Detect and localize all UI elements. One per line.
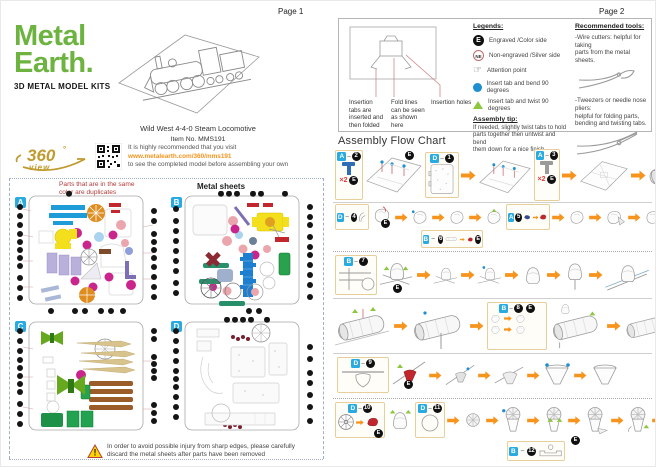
badge-360-view-word: view	[29, 163, 50, 172]
divider-dotted-bottom	[9, 459, 323, 460]
arrow-icon	[631, 169, 646, 182]
arrow-icon	[628, 212, 641, 223]
part-illustration	[514, 324, 527, 335]
sheet-tag: B	[499, 304, 508, 313]
step-illustration: E	[379, 258, 415, 293]
step-number: 12	[527, 447, 536, 456]
sheet-b-diagram	[169, 191, 319, 315]
step-illustration	[410, 208, 430, 226]
flow-box-b12: B – 12	[507, 441, 565, 461]
page2-label: Page 2	[599, 7, 624, 16]
insertion-label-tabs: Insertion tabs are inserted and then fol…	[349, 99, 385, 129]
tweezers-line3: bending and twisting tabs.	[575, 120, 647, 128]
step-number: 8	[514, 304, 523, 313]
part-illustration	[539, 212, 548, 222]
sheet-tag: D	[348, 404, 357, 413]
dash: –	[432, 236, 435, 242]
sheet-tag: D	[351, 359, 360, 368]
engraved-marker: E	[349, 176, 358, 185]
row-divider-dotted	[333, 398, 652, 399]
part-illustration	[523, 212, 532, 222]
step-illustration	[579, 155, 629, 195]
legend-attention-label: Attention point	[487, 67, 527, 74]
flow-box-d4: D – 4	[335, 204, 369, 230]
dash: –	[346, 214, 349, 220]
arrow-icon	[611, 415, 624, 426]
step-illustration	[563, 259, 587, 291]
wire-cutters-line1: -Wire cutters: helpful for taking	[575, 34, 647, 49]
legend-non-engraved-label: Non-engraved /Silver side	[489, 52, 560, 59]
arrow-icon	[607, 320, 621, 332]
legends-section: Legends: E Engraved /Color side NE Non-e…	[473, 23, 569, 155]
view360-line1: It is highly recommended that you visit	[128, 144, 328, 153]
page1-label: Page 1	[278, 7, 303, 16]
insertion-label-fold: Fold lines can be seen as shown here	[391, 99, 427, 129]
arrow-icon	[417, 269, 431, 281]
row-divider-dotted	[333, 251, 652, 252]
tools-title: Recommended tools:	[575, 23, 647, 30]
part-illustration	[427, 163, 457, 197]
step-illustration	[411, 303, 467, 349]
engraved-marker: E	[475, 235, 481, 244]
logo-word-metal: Metal	[14, 23, 110, 50]
flow-box-d9: D – 9	[337, 357, 389, 393]
step-number: 6	[438, 235, 444, 244]
sheet-a-diagram	[13, 191, 163, 315]
flow-box-b6: B – 6 E	[421, 230, 483, 248]
legend-engraved-label: Engraved /Color side	[489, 37, 547, 44]
warning-line2: discard the metal sheets after parts hav…	[107, 451, 295, 459]
insertion-diagram	[348, 25, 468, 97]
flow-box-b7: B – 7	[335, 255, 377, 295]
flow-box-a3: A – 3 ×2 E	[534, 149, 560, 201]
step-number: 10	[363, 404, 372, 413]
sheet-c-diagram	[13, 317, 163, 441]
arrow-icon	[460, 236, 465, 243]
part-illustration	[467, 235, 474, 244]
arrow-icon	[478, 370, 491, 381]
step-illustration	[462, 412, 484, 428]
non-engraved-badge-icon: NE	[473, 50, 484, 61]
flow-row-1: A – 2 ×2 E E D – 1 A	[335, 149, 653, 201]
legend-twist: Insert tab and twist 90 degrees	[473, 98, 569, 112]
arrow-icon	[461, 269, 475, 281]
engraved-badge-icon: E	[473, 35, 484, 46]
flow-box-d10: D – 10 E	[335, 402, 385, 438]
part-illustration	[365, 416, 381, 428]
part-illustration	[445, 234, 457, 244]
arrow-icon	[589, 269, 603, 281]
step-illustration	[626, 406, 650, 434]
arrow-icon	[562, 169, 577, 182]
bend-dot-icon	[473, 83, 482, 92]
engraved-marker: E	[571, 436, 580, 445]
dash: –	[347, 154, 350, 160]
step-illustration	[604, 207, 626, 227]
part-illustration	[340, 368, 386, 388]
sheet-tag: D	[430, 154, 439, 163]
step-number: 5	[515, 213, 521, 222]
warning-line1: In order to avoid possible injury from s…	[107, 443, 295, 451]
legends-title: Legends:	[473, 23, 569, 30]
part-illustration	[489, 313, 502, 324]
arrow-icon	[470, 320, 484, 332]
dash: –	[358, 406, 361, 412]
step-illustration	[590, 362, 620, 388]
arrow-icon	[504, 326, 512, 333]
step-illustration	[643, 208, 656, 226]
arrow-icon	[574, 370, 587, 381]
engraved-marker: E	[381, 219, 390, 228]
legend-twist-label: Insert tab and twist 90 degrees	[488, 98, 569, 112]
step-number: 3	[550, 151, 558, 160]
part-illustration	[489, 324, 502, 335]
model-name: Wild West 4-4-0 Steam Locomotive	[93, 124, 303, 133]
dash: –	[509, 306, 512, 312]
arrow-icon	[469, 212, 482, 223]
sheet-tag: D	[337, 213, 344, 222]
flow-box-b8: B – 8 E	[487, 302, 547, 350]
flow-row-5: D – 9 E	[337, 356, 653, 394]
dash: –	[354, 259, 357, 265]
arrow-icon	[447, 415, 460, 426]
arrow-icon	[552, 212, 565, 223]
part-illustration	[358, 209, 367, 225]
engraved-marker: E	[405, 151, 414, 160]
dash: –	[440, 156, 443, 162]
flow-chart-title: Assembly Flow Chart	[338, 135, 446, 147]
step-illustration	[445, 361, 475, 389]
part-illustration	[514, 313, 527, 324]
step-illustration	[494, 361, 524, 389]
step-illustration	[567, 208, 587, 226]
step-illustration	[387, 408, 413, 432]
brand-logo: Metal Earth. 3D METAL MODEL KITS	[14, 23, 110, 91]
step-illustration	[501, 406, 525, 434]
divider-dashed-left	[9, 178, 10, 459]
arrow-icon	[547, 269, 561, 281]
locomotive-line-drawing	[109, 19, 269, 121]
arrow-icon	[505, 269, 519, 281]
flow-row-2: D – 4 E A 5	[335, 204, 653, 230]
instruction-sheet: Page 1 Metal Earth. 3D METAL MODEL KITS …	[0, 0, 656, 467]
step-illustration: E	[371, 205, 393, 230]
sheet-tag: A	[536, 151, 544, 160]
warning-triangle-icon: !	[87, 444, 103, 459]
arrow-icon	[394, 320, 408, 332]
arrow-icon	[429, 370, 442, 381]
logo-tagline: 3D METAL MODEL KITS	[14, 82, 110, 91]
step-illustration	[605, 259, 651, 291]
engraved-marker: E	[526, 304, 535, 313]
arrow-icon	[395, 212, 408, 223]
step-illustration	[484, 208, 504, 226]
arrow-icon	[589, 212, 602, 223]
dash: –	[428, 406, 431, 412]
dash: –	[361, 361, 364, 367]
part-illustration	[538, 444, 563, 458]
tools-section: Recommended tools: -Wire cutters: helpfu…	[575, 23, 647, 161]
qr-code-icon	[95, 143, 122, 170]
sheet-d-diagram	[169, 317, 319, 441]
step-illustration	[335, 303, 391, 349]
arrow-icon	[527, 415, 540, 426]
item-number: Item No. MMS191	[93, 136, 303, 143]
legend-engraved: E Engraved /Color side	[473, 35, 569, 46]
step-illustration	[648, 162, 656, 188]
row-divider	[333, 353, 652, 354]
sheet-tag: A	[337, 152, 346, 161]
sheet-tag: B	[509, 447, 518, 456]
view360-url: www.metalearth.com/360/mms191	[128, 153, 328, 162]
flow-row-6: D – 10 E D – 11	[335, 401, 653, 439]
flow-row-4: B – 8 E	[335, 301, 653, 351]
step-illustration	[433, 262, 459, 288]
arrow-icon	[568, 415, 581, 426]
step-illustration	[583, 406, 609, 434]
sheet-tag: D	[418, 404, 427, 413]
flow-box-d11: D – 11	[415, 402, 445, 438]
step-illustration	[477, 262, 503, 288]
sheet-tag: B	[344, 257, 353, 266]
tweezers-line1: -Tweezers or needle nose pliers:	[575, 97, 647, 112]
badge-360-view: 360 ° view	[13, 144, 91, 174]
step-illustration	[543, 362, 571, 388]
engraved-marker: E	[374, 429, 383, 438]
part-illustration	[337, 266, 375, 292]
legend-non-engraved: NE Non-engraved /Silver side	[473, 50, 569, 61]
quantity-label: ×2	[340, 177, 348, 184]
step-illustration: E	[392, 358, 426, 393]
flow-box-a2: A – 2 ×2 E	[335, 150, 363, 200]
sheet-tag: B	[423, 235, 429, 244]
quantity-label: ×2	[538, 176, 546, 183]
divider-dashed-right	[323, 178, 324, 459]
step-illustration	[550, 303, 604, 349]
engraved-marker: E	[393, 284, 402, 293]
part-illustration	[539, 160, 555, 175]
view360-text: It is highly recommended that you visit …	[128, 144, 328, 170]
row-divider	[333, 298, 652, 299]
view360-line2: to see the completed model before assemb…	[128, 161, 328, 170]
sheet-tag: A	[508, 213, 514, 222]
legend-bend: Insert tab and bend 90 degrees	[473, 80, 569, 94]
step-number: 2	[352, 152, 361, 161]
step-number: 11	[433, 404, 442, 413]
arrow-icon	[652, 415, 656, 426]
engraved-marker: E	[404, 380, 413, 389]
step-number: 4	[351, 213, 358, 222]
engraved-marker: E	[547, 175, 556, 184]
assembly-tip-line2: parts together then untwist and bend	[473, 132, 569, 147]
step-number: 1	[445, 154, 454, 163]
divider-dotted	[9, 178, 323, 179]
flow-row-3: B – 7 E	[335, 254, 653, 296]
arrow-icon	[504, 315, 512, 322]
wire-cutters-line2: parts from the metal sheets.	[575, 49, 647, 64]
arrow-icon	[533, 214, 539, 221]
warning-text: In order to avoid possible injury from s…	[107, 443, 295, 459]
twist-triangle-icon	[473, 101, 483, 109]
svg-text:!: !	[94, 448, 97, 458]
arrow-icon	[432, 212, 445, 223]
tweezers-line2: helpful for folding parts,	[575, 113, 647, 121]
step-illustration	[478, 154, 532, 196]
pointing-hand-icon: ☞	[473, 65, 482, 76]
arrow-icon	[527, 370, 540, 381]
row-divider	[333, 202, 652, 203]
flow-box-a5: A 5	[506, 204, 550, 230]
part-illustration	[337, 413, 355, 431]
wire-cutters-icon	[575, 66, 641, 90]
badge-360-degree: °	[63, 145, 66, 154]
legend-attention: ☞ Attention point	[473, 65, 569, 76]
step-illustration: E	[365, 151, 423, 200]
dash: –	[521, 448, 524, 454]
step-number: 9	[366, 359, 375, 368]
assembly-tip-title: Assembly tip:	[473, 116, 569, 123]
step-illustration	[521, 263, 545, 287]
flow-box-d1: D – 1	[425, 152, 459, 198]
arrow-icon	[461, 169, 476, 182]
dash: –	[545, 153, 548, 159]
duplicates-note-line1: Parts that are in the same	[59, 181, 135, 189]
step-illustration	[542, 406, 566, 434]
assembly-tip-line1: If needed, slightly twist tabs to hold	[473, 125, 569, 132]
logo-word-earth: Earth.	[14, 50, 110, 77]
step-illustration	[447, 208, 467, 226]
metal-sheets-title: Metal sheets	[197, 182, 245, 191]
step-number: 7	[359, 257, 368, 266]
part-illustration	[420, 413, 440, 433]
arrow-icon	[486, 415, 499, 426]
arrow-icon	[356, 419, 364, 426]
legend-bend-label: Insert tab and bend 90 degrees	[487, 80, 569, 94]
step-illustration	[624, 305, 656, 347]
part-illustration	[341, 161, 357, 176]
